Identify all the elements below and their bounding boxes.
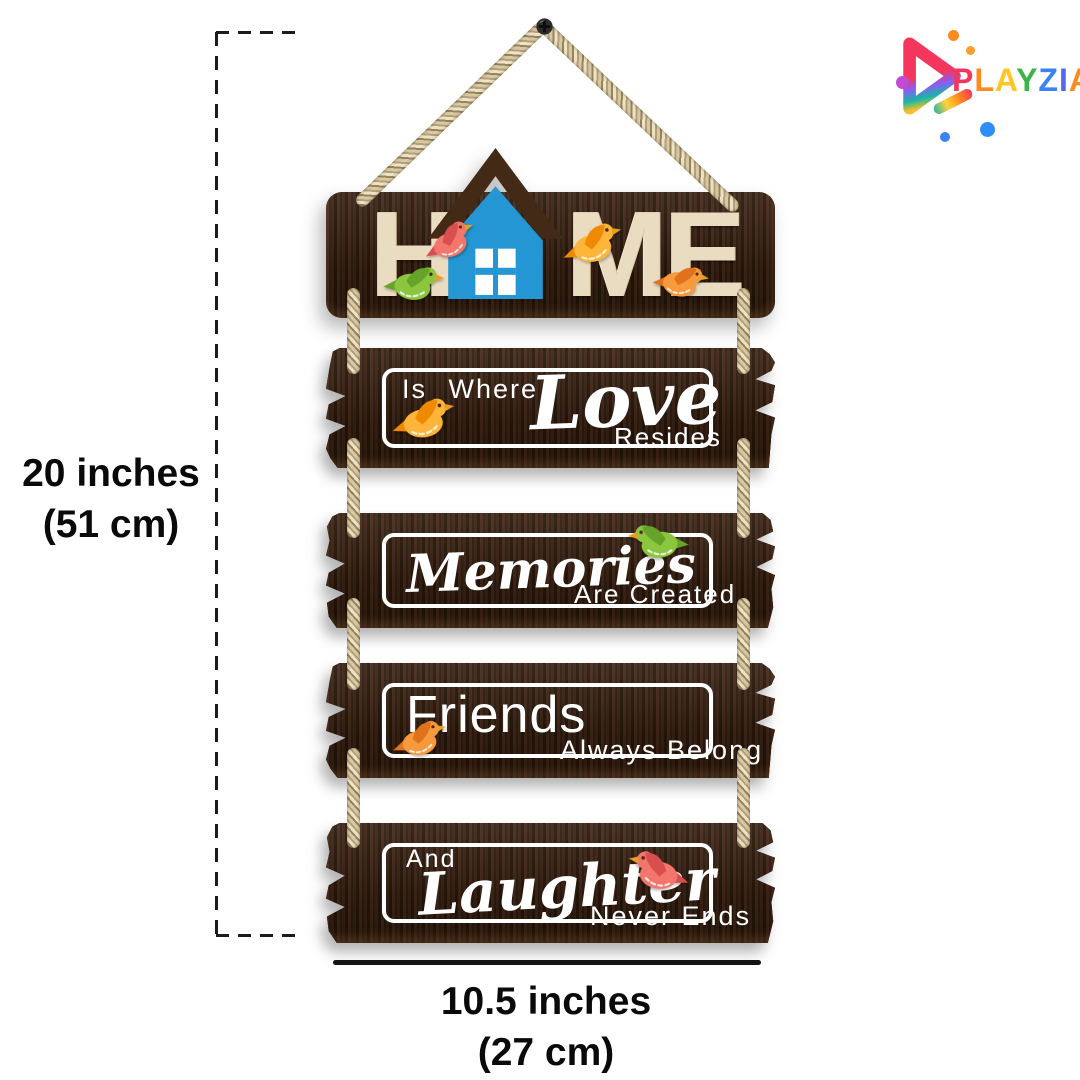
logo-letter: I [1059, 62, 1069, 98]
link-rope-left-4 [347, 748, 360, 848]
nail-icon [535, 17, 554, 36]
plank-laughter: And Laughter Never Ends [326, 823, 775, 943]
logo-dot-blue-small [940, 132, 950, 142]
product-photo: 20 inches (51 cm) 10.5 inches (27 cm) PL… [0, 0, 1080, 1080]
logo-letter: A [1069, 62, 1080, 98]
bird-icon [379, 254, 449, 312]
link-rope-left-3 [347, 598, 360, 690]
plank-trail-text: Never Ends [590, 901, 751, 932]
logo-dot-orange-2 [966, 46, 975, 55]
logo-dot-orange-1 [948, 30, 959, 41]
bird-green-memories [623, 511, 694, 571]
logo-wordmark: PLAYZIA [952, 62, 1080, 99]
height-dashed-tick-top [216, 31, 301, 34]
logo-letter: Z [1038, 62, 1059, 98]
link-rope-left-2 [347, 438, 360, 538]
bird-icon [623, 511, 694, 571]
width-cm: (27 cm) [348, 1027, 744, 1078]
logo-letter: L [974, 62, 995, 98]
plank-memories: Memories Are Created [326, 513, 775, 628]
logo-letter: P [952, 62, 974, 98]
bird-orange-friends [387, 711, 453, 767]
height-cm: (51 cm) [8, 499, 214, 550]
bird-pink-laughter [621, 842, 694, 901]
bird-icon [621, 842, 694, 901]
plank-trail-text: Are Created [574, 579, 736, 610]
playzia-logo: PLAYZIA [892, 26, 1078, 148]
height-dashed-tick-bottom [216, 934, 301, 937]
link-rope-right-2 [737, 438, 750, 538]
logo-dot-purple [896, 76, 909, 89]
link-rope-right-3 [737, 598, 750, 690]
width-measure-line [333, 960, 761, 965]
link-rope-left-1 [347, 288, 360, 374]
bird-green-home [379, 254, 449, 312]
logo-dot-blue-large [980, 122, 995, 137]
logo-letter: A [995, 62, 1016, 98]
bird-yellow-love [385, 388, 462, 449]
bird-icon [387, 711, 453, 767]
link-rope-right-1 [737, 288, 750, 374]
plank-trail-text: Always Belong [560, 735, 763, 766]
width-dimension-label: 10.5 inches (27 cm) [348, 976, 744, 1079]
width-inches: 10.5 inches [348, 976, 744, 1027]
height-dashed-line [215, 32, 218, 937]
logo-letter: Y [1016, 62, 1038, 98]
height-inches: 20 inches [8, 448, 214, 499]
link-rope-right-4 [737, 748, 750, 848]
bird-icon [385, 388, 462, 449]
height-dimension-label: 20 inches (51 cm) [8, 448, 214, 551]
plank-trail-text: Resides [614, 422, 722, 453]
